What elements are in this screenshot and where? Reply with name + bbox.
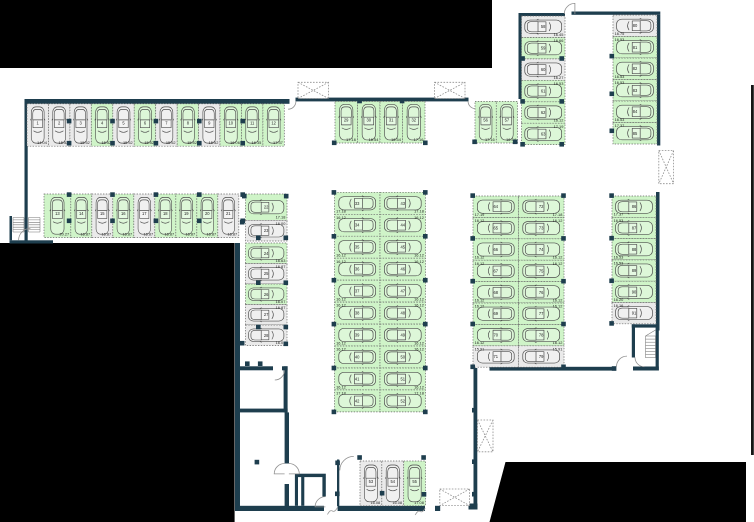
svg-text:68: 68 xyxy=(494,290,499,295)
svg-text:24: 24 xyxy=(264,251,269,256)
svg-text:16.12: 16.12 xyxy=(553,218,563,223)
svg-text:20.27: 20.27 xyxy=(59,232,69,237)
svg-text:26: 26 xyxy=(264,292,269,297)
svg-text:16.12: 16.12 xyxy=(475,304,485,309)
svg-text:15.52: 15.52 xyxy=(144,140,154,145)
svg-text:88: 88 xyxy=(632,247,637,252)
svg-text:22: 22 xyxy=(264,205,269,210)
svg-text:16.12: 16.12 xyxy=(336,340,346,345)
svg-text:16.12: 16.12 xyxy=(475,218,485,223)
svg-text:16.20: 16.20 xyxy=(614,297,625,302)
svg-text:16.45: 16.45 xyxy=(554,32,564,37)
svg-text:54: 54 xyxy=(391,479,396,484)
svg-text:38: 38 xyxy=(355,311,360,316)
svg-text:16.12: 16.12 xyxy=(475,255,485,260)
svg-text:32: 32 xyxy=(412,118,417,123)
svg-text:48: 48 xyxy=(401,311,406,316)
svg-text:16.87: 16.87 xyxy=(122,232,132,237)
svg-text:16.53: 16.53 xyxy=(554,81,564,86)
svg-text:16.87: 16.87 xyxy=(185,232,195,237)
svg-text:17.37: 17.37 xyxy=(615,123,625,128)
svg-text:16.63: 16.63 xyxy=(276,258,286,263)
svg-text:57: 57 xyxy=(505,118,510,123)
svg-text:27: 27 xyxy=(264,312,269,317)
svg-text:17: 17 xyxy=(142,211,147,216)
svg-text:16.12: 16.12 xyxy=(336,297,346,302)
svg-text:60: 60 xyxy=(541,67,546,72)
svg-text:16.75: 16.75 xyxy=(615,31,625,36)
svg-text:15.52: 15.52 xyxy=(123,140,133,145)
svg-text:21: 21 xyxy=(226,211,231,216)
svg-text:91: 91 xyxy=(632,311,637,316)
svg-text:30: 30 xyxy=(367,118,372,123)
svg-text:80: 80 xyxy=(633,23,638,28)
svg-text:16.06: 16.06 xyxy=(230,140,240,145)
svg-text:16.53: 16.53 xyxy=(615,37,625,42)
svg-text:79: 79 xyxy=(539,354,544,359)
svg-text:16.12: 16.12 xyxy=(414,297,424,302)
svg-text:16.16: 16.16 xyxy=(614,303,624,308)
svg-text:56: 56 xyxy=(483,118,488,123)
svg-text:85: 85 xyxy=(633,131,638,136)
svg-text:62: 62 xyxy=(541,110,546,115)
svg-text:15.91: 15.91 xyxy=(553,346,563,351)
svg-text:17.08: 17.08 xyxy=(414,500,424,505)
svg-text:16.53: 16.53 xyxy=(615,117,625,122)
svg-text:17.16: 17.16 xyxy=(485,137,495,142)
svg-text:16.53: 16.53 xyxy=(615,80,625,85)
svg-text:14.04: 14.04 xyxy=(37,140,48,145)
svg-text:29: 29 xyxy=(344,118,349,123)
svg-text:28: 28 xyxy=(264,333,269,338)
svg-text:16.87: 16.87 xyxy=(206,232,216,237)
svg-text:37: 37 xyxy=(355,289,360,294)
svg-text:17.19: 17.19 xyxy=(554,124,564,129)
svg-text:15: 15 xyxy=(100,211,105,216)
svg-text:34: 34 xyxy=(355,223,360,228)
svg-text:16.53: 16.53 xyxy=(614,261,624,266)
svg-text:78: 78 xyxy=(539,333,544,338)
svg-text:75: 75 xyxy=(539,268,544,273)
svg-text:17.18: 17.18 xyxy=(414,391,424,396)
svg-text:33: 33 xyxy=(355,201,360,206)
svg-text:82: 82 xyxy=(633,66,638,71)
svg-text:67: 67 xyxy=(494,268,499,273)
svg-text:16.00: 16.00 xyxy=(276,221,287,226)
svg-text:17.37: 17.37 xyxy=(614,212,624,217)
svg-text:12: 12 xyxy=(271,120,276,125)
svg-text:17.18: 17.18 xyxy=(336,209,346,214)
svg-text:14: 14 xyxy=(79,211,84,216)
svg-text:16.12: 16.12 xyxy=(414,384,424,389)
svg-text:15.91: 15.91 xyxy=(475,346,485,351)
svg-text:43: 43 xyxy=(401,201,406,206)
svg-text:16.12: 16.12 xyxy=(414,340,424,345)
svg-text:17.37: 17.37 xyxy=(273,140,283,145)
svg-text:77: 77 xyxy=(539,311,544,316)
svg-text:16.53: 16.53 xyxy=(614,218,624,223)
svg-text:61: 61 xyxy=(541,89,546,94)
svg-text:16.08: 16.08 xyxy=(370,500,380,505)
svg-text:87: 87 xyxy=(632,226,637,231)
svg-text:16.87: 16.87 xyxy=(80,232,90,237)
svg-text:19: 19 xyxy=(184,211,189,216)
svg-text:25: 25 xyxy=(264,271,269,276)
svg-text:59: 59 xyxy=(541,46,546,51)
svg-text:84: 84 xyxy=(633,109,638,114)
svg-text:81: 81 xyxy=(633,45,638,50)
svg-text:16.87: 16.87 xyxy=(276,264,286,269)
svg-text:49: 49 xyxy=(401,333,406,338)
svg-text:16.12: 16.12 xyxy=(414,215,424,220)
svg-text:83: 83 xyxy=(633,88,638,93)
svg-text:16.12: 16.12 xyxy=(554,118,564,123)
svg-text:16.54: 16.54 xyxy=(369,137,380,142)
svg-text:45: 45 xyxy=(401,245,406,250)
svg-text:16.12: 16.12 xyxy=(336,259,346,264)
svg-text:63: 63 xyxy=(541,132,546,137)
svg-text:16.12: 16.12 xyxy=(336,347,346,352)
svg-text:15.52: 15.52 xyxy=(80,140,90,145)
svg-text:16.12: 16.12 xyxy=(553,297,563,302)
svg-text:73: 73 xyxy=(539,226,544,231)
svg-text:15.52: 15.52 xyxy=(187,140,197,145)
svg-text:16.87: 16.87 xyxy=(276,305,286,310)
svg-text:31: 31 xyxy=(389,118,394,123)
svg-text:17.18: 17.18 xyxy=(336,391,346,396)
svg-text:16.12: 16.12 xyxy=(414,259,424,264)
svg-text:16.87: 16.87 xyxy=(101,232,111,237)
svg-text:16.12: 16.12 xyxy=(336,215,346,220)
svg-text:16: 16 xyxy=(121,211,126,216)
svg-text:16.12: 16.12 xyxy=(475,340,485,345)
svg-text:16.12: 16.12 xyxy=(414,253,424,258)
svg-text:16.87: 16.87 xyxy=(227,232,237,237)
svg-text:16.08: 16.08 xyxy=(392,500,402,505)
svg-text:16.12: 16.12 xyxy=(336,253,346,258)
svg-text:16.53: 16.53 xyxy=(614,254,624,259)
svg-text:15.52: 15.52 xyxy=(166,140,176,145)
svg-text:16.66: 16.66 xyxy=(554,38,564,43)
svg-text:72: 72 xyxy=(539,204,544,209)
svg-text:16.12: 16.12 xyxy=(475,297,485,302)
svg-text:16.12: 16.12 xyxy=(336,384,346,389)
svg-text:17.18: 17.18 xyxy=(414,209,424,214)
svg-text:17.18: 17.18 xyxy=(553,212,563,217)
svg-text:51: 51 xyxy=(401,377,406,382)
svg-text:47: 47 xyxy=(401,289,406,294)
svg-text:46: 46 xyxy=(401,267,406,272)
svg-text:20: 20 xyxy=(205,211,210,216)
svg-text:16.12: 16.12 xyxy=(414,347,424,352)
svg-text:40: 40 xyxy=(355,355,360,360)
svg-text:35: 35 xyxy=(355,245,360,250)
svg-text:11: 11 xyxy=(250,120,255,125)
svg-text:66: 66 xyxy=(494,247,499,252)
svg-text:16.87: 16.87 xyxy=(164,232,174,237)
svg-text:16.12: 16.12 xyxy=(414,303,424,308)
svg-text:86: 86 xyxy=(632,204,637,209)
svg-text:16.12: 16.12 xyxy=(336,303,346,308)
svg-text:16.12: 16.12 xyxy=(553,255,563,260)
svg-text:16.53: 16.53 xyxy=(615,74,625,79)
svg-text:16.12: 16.12 xyxy=(553,340,563,345)
svg-text:71: 71 xyxy=(494,354,499,359)
svg-text:39: 39 xyxy=(355,333,360,338)
svg-text:23: 23 xyxy=(264,228,269,233)
svg-text:90: 90 xyxy=(632,289,637,294)
svg-text:10: 10 xyxy=(229,120,234,125)
svg-text:16.12: 16.12 xyxy=(553,261,563,266)
svg-text:53: 53 xyxy=(369,479,374,484)
svg-text:42: 42 xyxy=(355,398,360,403)
svg-text:65: 65 xyxy=(494,226,499,231)
svg-text:70: 70 xyxy=(494,333,499,338)
svg-text:16.35: 16.35 xyxy=(252,140,262,145)
svg-text:50: 50 xyxy=(401,355,406,360)
svg-text:17.16: 17.16 xyxy=(414,137,424,142)
svg-text:16.87: 16.87 xyxy=(143,232,153,237)
svg-text:15.52: 15.52 xyxy=(101,140,111,145)
svg-text:55: 55 xyxy=(412,479,417,484)
svg-text:16.54: 16.54 xyxy=(391,137,402,142)
svg-text:13: 13 xyxy=(55,211,60,216)
svg-text:18: 18 xyxy=(163,211,168,216)
svg-text:17.16: 17.16 xyxy=(346,137,356,142)
svg-text:17.19: 17.19 xyxy=(475,212,485,217)
svg-text:15.52: 15.52 xyxy=(209,140,219,145)
svg-text:52: 52 xyxy=(401,398,406,403)
svg-text:69: 69 xyxy=(494,311,499,316)
svg-text:74: 74 xyxy=(539,247,544,252)
svg-text:64: 64 xyxy=(494,204,499,209)
svg-text:36: 36 xyxy=(355,267,360,272)
svg-text:44: 44 xyxy=(401,223,406,228)
svg-text:41: 41 xyxy=(355,377,360,382)
svg-text:89: 89 xyxy=(632,268,637,273)
svg-text:16.27: 16.27 xyxy=(554,75,564,80)
svg-text:58: 58 xyxy=(541,24,546,29)
svg-text:16.12: 16.12 xyxy=(475,261,485,266)
svg-text:76: 76 xyxy=(539,290,544,295)
svg-text:16.12: 16.12 xyxy=(553,304,563,309)
svg-text:17.18: 17.18 xyxy=(276,215,286,220)
svg-text:16.07: 16.07 xyxy=(276,299,286,304)
